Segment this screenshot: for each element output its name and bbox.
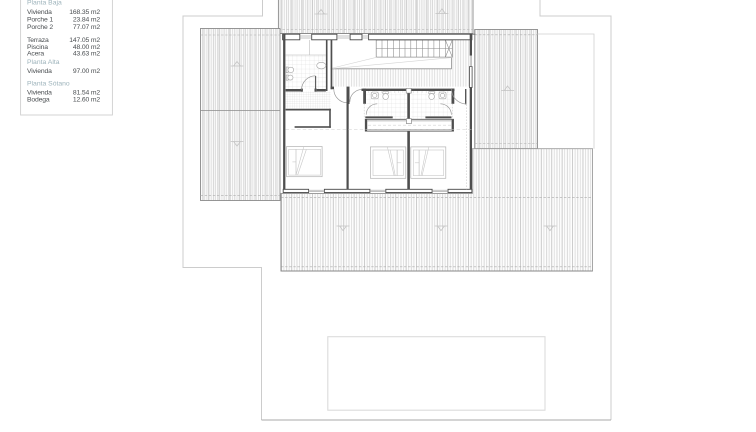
svg-text:Planta Sótano: Planta Sótano: [27, 81, 70, 88]
svg-text:23.84 m2: 23.84 m2: [73, 17, 101, 24]
svg-text:Terraza: Terraza: [27, 37, 49, 44]
svg-text:Vivienda: Vivienda: [27, 90, 52, 97]
svg-text:Bodega: Bodega: [27, 97, 50, 104]
svg-text:Porche 1: Porche 1: [27, 17, 53, 24]
svg-text:97.00 m2: 97.00 m2: [73, 68, 101, 75]
svg-text:147.05 m2: 147.05 m2: [69, 37, 100, 44]
svg-text:Porche 2: Porche 2: [27, 24, 53, 31]
svg-text:Vivienda: Vivienda: [27, 68, 52, 75]
svg-text:81.54 m2: 81.54 m2: [73, 90, 101, 97]
svg-text:Acera: Acera: [27, 51, 44, 58]
svg-text:43.63 m2: 43.63 m2: [73, 51, 101, 58]
svg-text:77.07 m2: 77.07 m2: [73, 24, 101, 31]
svg-text:12.60 m2: 12.60 m2: [73, 97, 101, 104]
svg-text:Vivienda: Vivienda: [27, 9, 52, 16]
svg-text:Planta Baja: Planta Baja: [27, 0, 62, 6]
svg-text:168.35 m2: 168.35 m2: [69, 9, 100, 16]
svg-text:Planta Alta: Planta Alta: [27, 59, 60, 66]
